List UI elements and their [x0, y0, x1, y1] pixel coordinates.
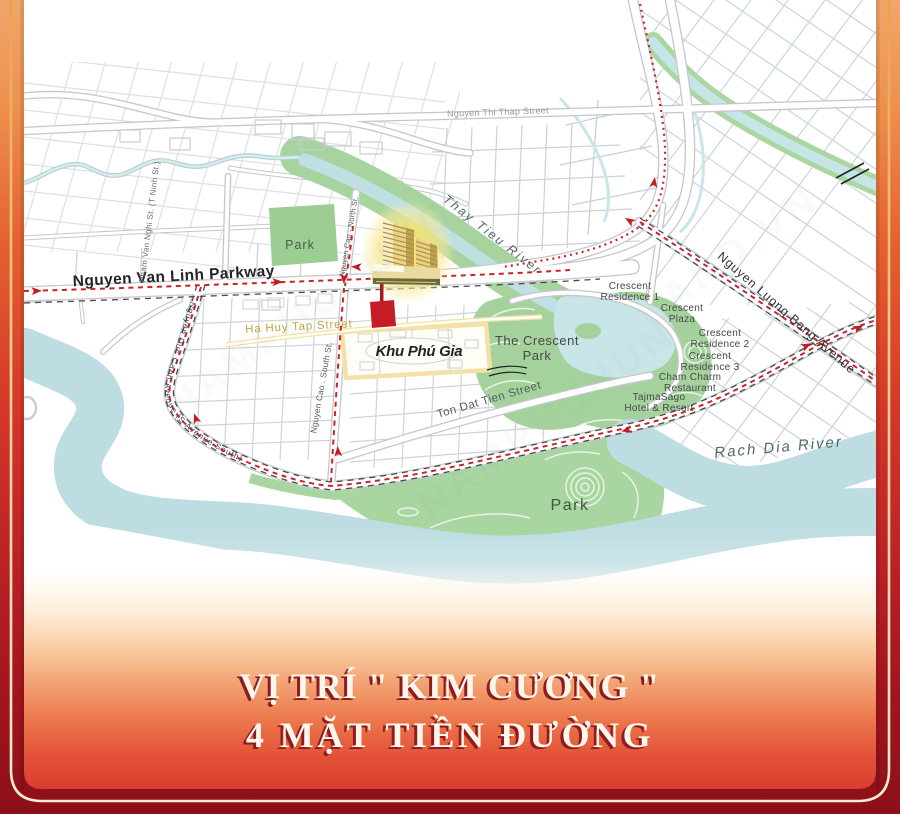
svg-text:4 MẶT TIỀN ĐƯỜNG: 4 MẶT TIỀN ĐƯỜNG — [246, 715, 654, 755]
svg-text:Residence 1: Residence 1 — [601, 292, 660, 303]
svg-text:Park: Park — [285, 238, 315, 252]
svg-text:Hotel & Resort: Hotel & Resort — [624, 403, 693, 414]
svg-text:Crescent: Crescent — [609, 281, 651, 292]
svg-text:Crescent: Crescent — [699, 328, 741, 339]
svg-text:Plaza: Plaza — [669, 314, 696, 325]
svg-text:Cham Charm: Cham Charm — [659, 372, 721, 383]
svg-text:The Crescent: The Crescent — [495, 333, 579, 348]
svg-text:Park: Park — [523, 348, 552, 363]
svg-text:Residence 2: Residence 2 — [691, 339, 750, 350]
svg-text:Park: Park — [551, 497, 590, 514]
svg-text:Khu Phú Gia: Khu Phú Gia — [376, 343, 463, 360]
svg-text:Crescent: Crescent — [689, 351, 731, 362]
svg-text:Crescent: Crescent — [661, 303, 703, 314]
svg-text:TajmaSago: TajmaSago — [633, 392, 686, 403]
svg-text:VỊ TRÍ " KIM CƯƠNG ": VỊ TRÍ " KIM CƯƠNG " — [240, 666, 661, 706]
